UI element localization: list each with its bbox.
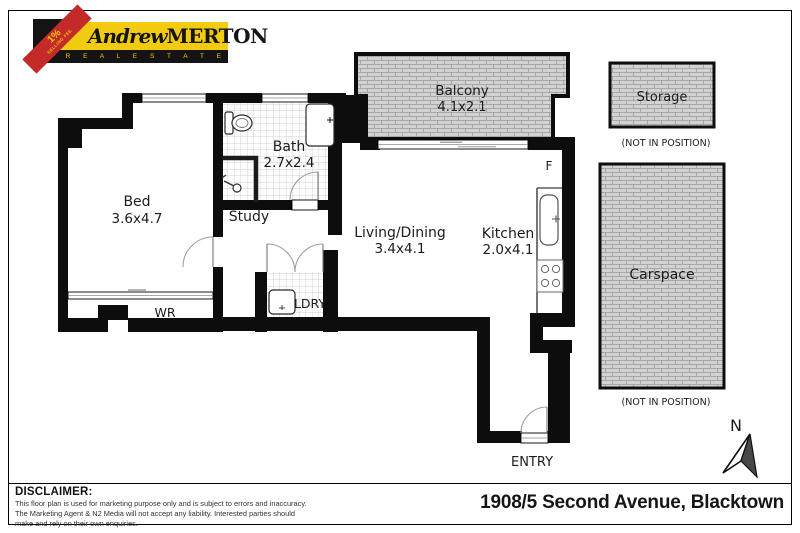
cooktop (537, 260, 563, 292)
floorplan-drawing: N Bed 3.6x4.7 Bath 2.7x2.4 Study Living/… (0, 0, 800, 533)
balcony-label: Balcony (435, 83, 489, 99)
kitchen-fixtures (537, 188, 563, 313)
floorplan-page: AndrewMERTON R E A L E S T A T E 1% SELL… (0, 0, 800, 533)
study-label: Study (229, 209, 269, 225)
bed-size: 3.6x4.7 (112, 211, 163, 227)
fridge-label: F (546, 159, 553, 173)
kitchen-sink (540, 195, 558, 245)
entry-label: ENTRY (511, 455, 553, 470)
disclaimer-line: This floor plan is used for marketing pu… (15, 500, 395, 509)
laundry-tub (269, 290, 295, 314)
disclaimer-block: DISCLAIMER: This floor plan is used for … (15, 486, 395, 529)
storage-label: Storage (637, 90, 688, 105)
disclaimer-line: make and rely on their own enquiries. (15, 520, 395, 529)
disclaimer-title: DISCLAIMER: (15, 486, 395, 498)
kitchen-size: 2.0x4.1 (483, 242, 534, 258)
north-needle-dark (741, 434, 757, 477)
bath-size: 2.7x2.4 (264, 155, 315, 171)
bed-label: Bed (123, 194, 150, 210)
laundry-door-right-arc (295, 244, 323, 272)
north-label: N (730, 416, 742, 435)
bath-label: Bath (273, 139, 306, 155)
balcony-size: 4.1x2.1 (437, 100, 486, 115)
kitchen-label: Kitchen (482, 226, 535, 242)
entry-door-arc (521, 407, 547, 433)
bath-door-threshold (292, 200, 318, 210)
laundry-door-left-arc (267, 244, 295, 272)
living-label: Living/Dining (354, 225, 446, 241)
toilet-bowl (232, 115, 252, 131)
carspace-note: (NOT IN POSITION) (622, 397, 711, 408)
storage-note: (NOT IN POSITION) (622, 138, 711, 149)
bathtub (306, 104, 334, 146)
carspace-label: Carspace (629, 267, 694, 283)
shower-head-icon (233, 184, 241, 192)
living-size: 3.4x4.1 (375, 241, 426, 257)
footer-divider (8, 483, 791, 484)
wardrobe-label: WR (154, 305, 175, 320)
laundry-label: LDRY (294, 296, 326, 311)
north-compass: N (723, 416, 757, 477)
disclaimer-line: The Marketing Agent & N2 Media will not … (15, 510, 395, 519)
bed-door-arc (183, 237, 213, 267)
property-address: 1908/5 Second Avenue, Blacktown (480, 492, 784, 514)
